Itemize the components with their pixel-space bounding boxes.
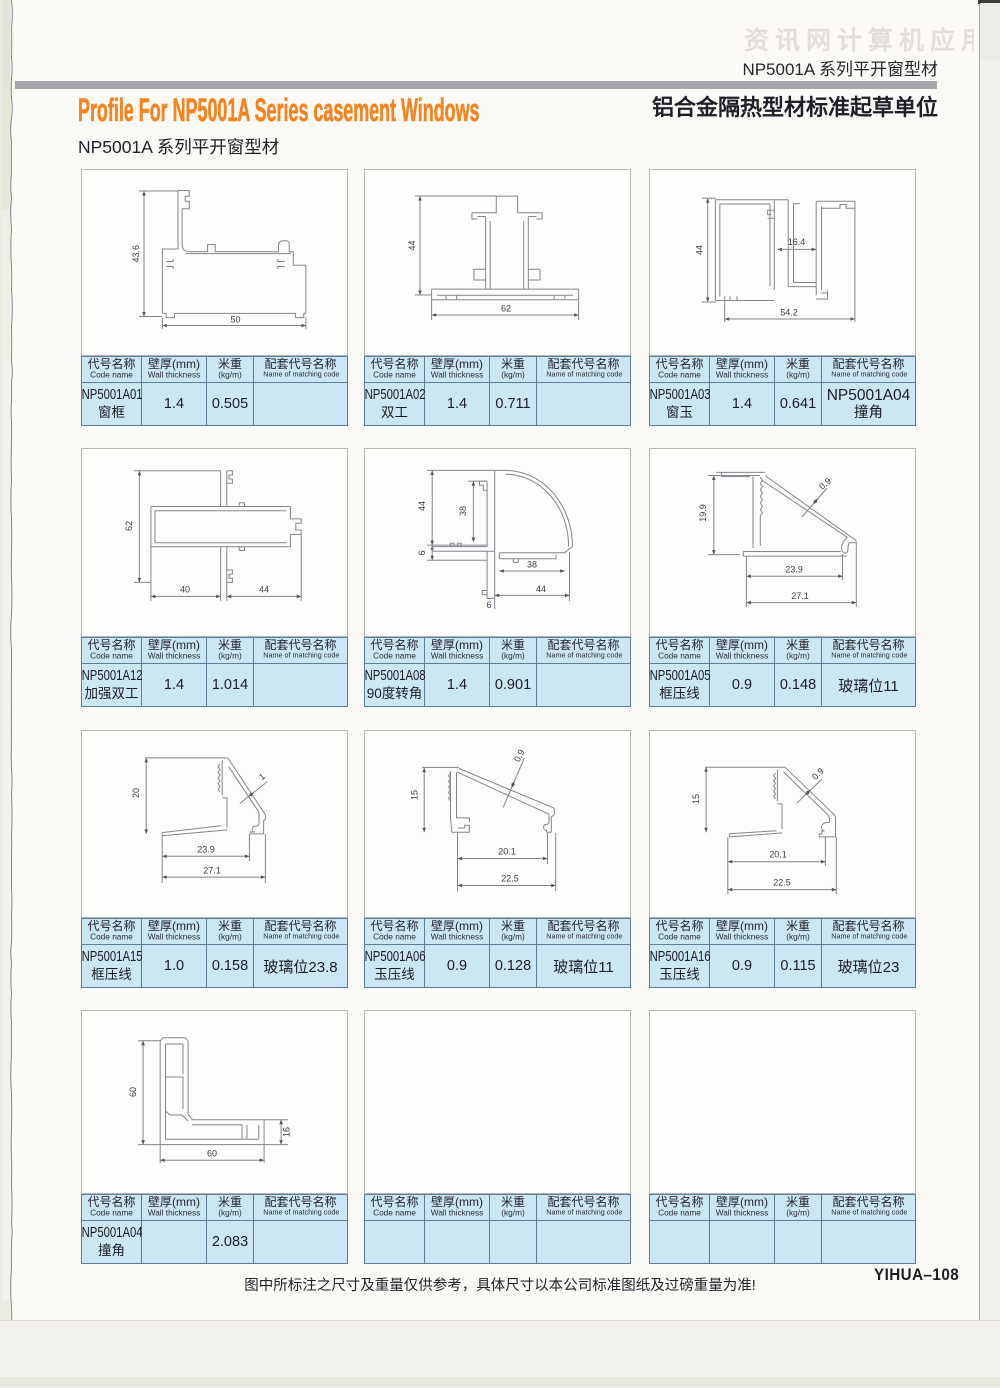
svg-text:44: 44 bbox=[536, 584, 546, 594]
svg-text:6: 6 bbox=[486, 600, 491, 610]
svg-text:15: 15 bbox=[691, 794, 701, 804]
svg-text:62: 62 bbox=[501, 304, 511, 314]
svg-text:16: 16 bbox=[282, 1127, 292, 1137]
svg-text:0.9: 0.9 bbox=[817, 476, 833, 492]
svg-text:20.1: 20.1 bbox=[498, 847, 516, 857]
svg-text:54.2: 54.2 bbox=[780, 308, 798, 318]
svg-text:15: 15 bbox=[410, 790, 420, 800]
svg-text:44: 44 bbox=[259, 585, 269, 595]
svg-text:23.9: 23.9 bbox=[197, 845, 215, 855]
svg-text:1: 1 bbox=[257, 771, 267, 782]
svg-text:38: 38 bbox=[458, 506, 468, 516]
svg-text:19.9: 19.9 bbox=[698, 504, 708, 522]
svg-text:0.9: 0.9 bbox=[810, 766, 826, 782]
svg-text:0.9: 0.9 bbox=[512, 748, 527, 764]
svg-text:23.9: 23.9 bbox=[785, 565, 803, 575]
svg-text:40: 40 bbox=[180, 585, 190, 595]
svg-text:44: 44 bbox=[695, 245, 705, 255]
svg-text:44: 44 bbox=[407, 240, 417, 250]
svg-text:16.4: 16.4 bbox=[788, 237, 806, 247]
svg-text:44: 44 bbox=[417, 501, 427, 511]
svg-text:50: 50 bbox=[230, 315, 240, 325]
svg-text:22.5: 22.5 bbox=[773, 878, 791, 888]
svg-text:20: 20 bbox=[131, 788, 141, 798]
svg-text:20.1: 20.1 bbox=[769, 850, 787, 860]
svg-text:27.1: 27.1 bbox=[203, 866, 221, 876]
svg-text:60: 60 bbox=[128, 1087, 138, 1097]
svg-text:43.6: 43.6 bbox=[131, 245, 141, 263]
svg-text:27.1: 27.1 bbox=[791, 591, 809, 601]
svg-text:38: 38 bbox=[527, 560, 537, 570]
svg-text:22.5: 22.5 bbox=[501, 874, 519, 884]
svg-text:60: 60 bbox=[207, 1149, 217, 1159]
svg-text:6: 6 bbox=[417, 550, 427, 555]
svg-text:62: 62 bbox=[124, 521, 134, 531]
